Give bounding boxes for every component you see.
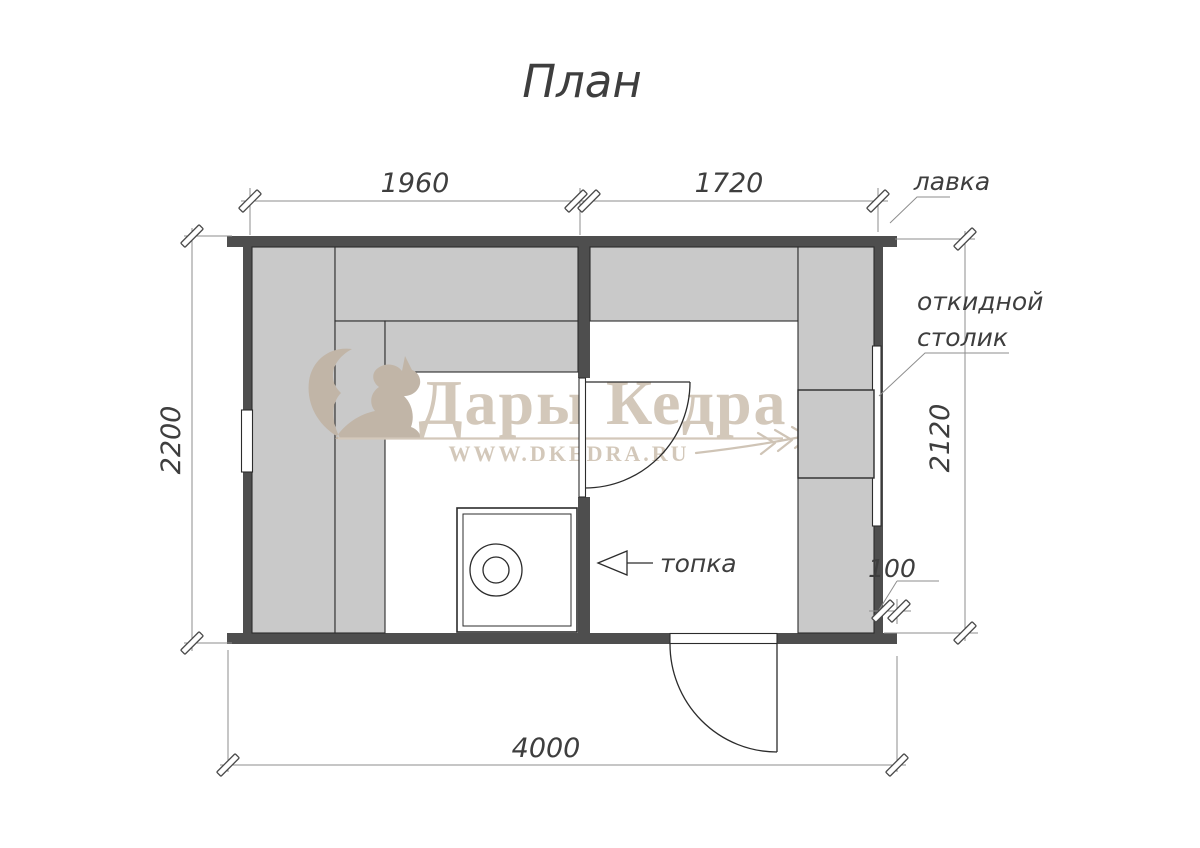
exterior-door-swing-arc: [670, 644, 777, 752]
interior-door-jamb: [579, 378, 586, 497]
dim-2120: 2120: [925, 404, 956, 473]
dimension-top: 1960 1720: [239, 168, 890, 235]
bench-right-stool: [798, 390, 874, 478]
partition-upper: [578, 247, 590, 378]
plan-title: План: [522, 55, 642, 108]
floor-plan-page: План Дары Кедра WWW.DKEDRA.RU: [0, 0, 1200, 848]
wall-bottom-right: [777, 633, 897, 644]
label-bench: лавка: [890, 167, 990, 223]
window-left: [242, 410, 253, 472]
bench-left-step: [335, 321, 385, 633]
bench-top-tier1: [335, 247, 578, 321]
bench-label: лавка: [913, 167, 990, 196]
wall-top: [227, 236, 897, 247]
dim-100: 100: [868, 554, 916, 583]
exterior-door-threshold: [670, 634, 777, 644]
folding-table-label-line1: откидной: [917, 287, 1043, 316]
dim-4000: 4000: [512, 733, 581, 764]
bench-left-wide: [252, 247, 335, 633]
label-firebox: топка: [598, 549, 737, 578]
stove-body: [457, 508, 577, 632]
firebox-arrow-icon: [598, 551, 627, 575]
floor-plan-drawing: План Дары Кедра WWW.DKEDRA.RU: [0, 0, 1200, 848]
dim-1720: 1720: [695, 168, 764, 199]
wall-bottom-left: [227, 633, 670, 644]
watermark-brand: Дары Кедра: [418, 367, 787, 438]
folding-table-label-line2: столик: [917, 323, 1008, 352]
dim-1960: 1960: [381, 168, 450, 199]
bench-top-tier2: [385, 321, 578, 372]
dimension-left: 2200: [156, 225, 232, 655]
stove: [457, 508, 577, 632]
dimension-bottom: 4000: [217, 650, 909, 776]
firebox-label: топка: [660, 549, 737, 578]
label-folding-table: откидной столик: [879, 287, 1043, 396]
partition-lower: [578, 497, 590, 633]
bench-front-top: [590, 247, 798, 321]
watermark: Дары Кедра WWW.DKEDRA.RU: [309, 349, 834, 466]
dim-2200: 2200: [156, 406, 187, 475]
